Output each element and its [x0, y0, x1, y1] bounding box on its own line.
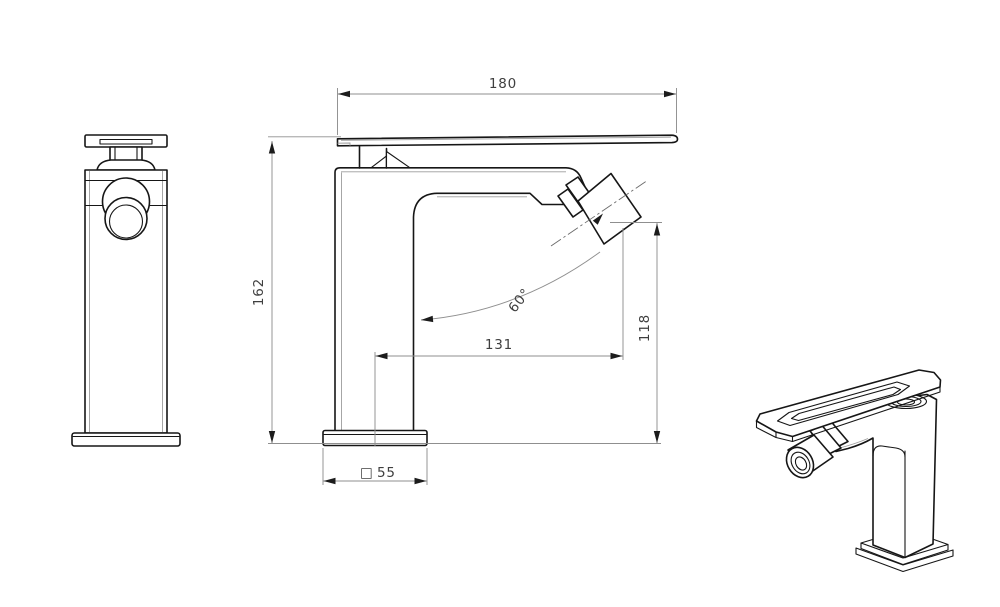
aerator-inner-circle	[110, 205, 143, 238]
dimension-arrow	[269, 431, 275, 443]
dimension-arrow	[654, 224, 660, 236]
dim-label-60deg: 60°	[505, 285, 534, 316]
front-view	[72, 135, 180, 446]
perspective-view	[757, 370, 954, 572]
dimension-arrow	[269, 142, 275, 154]
handle-lever-blade	[338, 135, 678, 146]
dimension-arrow	[654, 431, 660, 443]
dim-label-131: 131	[485, 337, 513, 353]
dimension-arrow	[421, 316, 434, 323]
dim-label-180: 180	[489, 76, 517, 92]
dimension-arrow	[376, 353, 388, 359]
dimension-arrow	[664, 91, 676, 97]
faucet-technical-drawing: 180 162 118 131 60° □ 55	[0, 0, 1000, 607]
technical-drawing-page: 180 162 118 131 60° □ 55	[0, 0, 1000, 607]
dimension-arrow	[338, 91, 350, 97]
dimension-arrow	[415, 478, 427, 484]
square-section-symbol: □	[360, 465, 374, 481]
aerator-cylinder	[578, 174, 641, 245]
stem-wedge-line	[371, 156, 387, 168]
dim-label-55: 55	[377, 465, 396, 481]
stem-wedge	[387, 152, 411, 168]
handle-lever-edge	[85, 135, 167, 147]
spout-underside	[414, 193, 567, 431]
body-outline	[335, 168, 589, 431]
dimension-arrow	[611, 353, 623, 359]
dimension-arrow	[324, 478, 336, 484]
dim-label-118: 118	[637, 314, 653, 342]
cartridge-dome	[97, 160, 155, 170]
dim-label-162: 162	[251, 278, 267, 306]
base-plate-front	[72, 433, 180, 446]
side-view	[323, 135, 678, 445]
